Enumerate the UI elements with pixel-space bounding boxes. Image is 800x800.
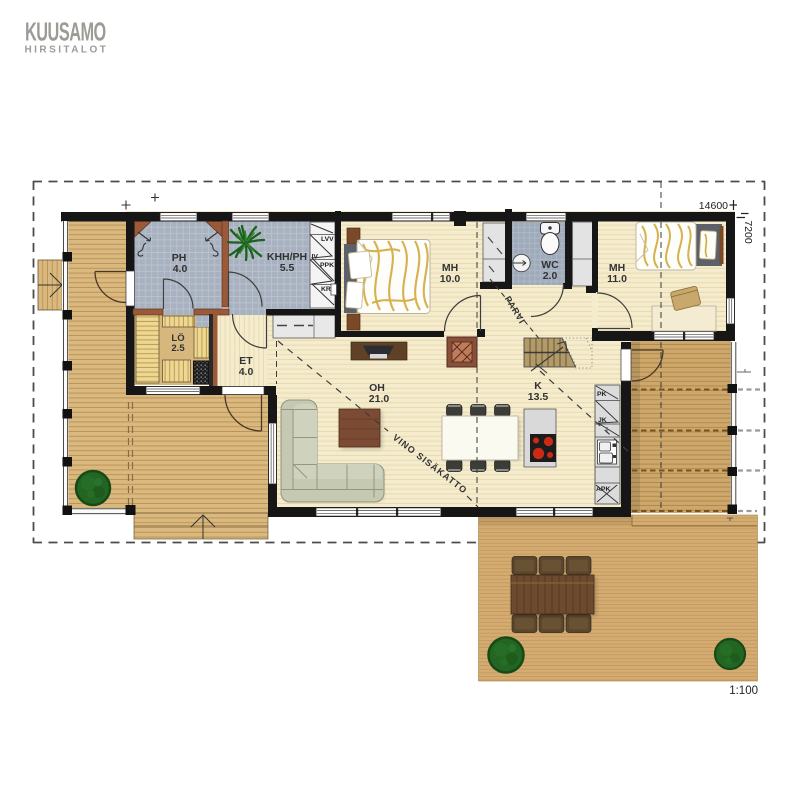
svg-text:JK: JK — [598, 417, 607, 424]
svg-text:KUUSAMO: KUUSAMO — [25, 17, 106, 47]
svg-text:IV: IV — [312, 254, 319, 261]
svg-text:APK: APK — [596, 486, 610, 493]
svg-text:13.5: 13.5 — [528, 391, 549, 403]
svg-text:5.5: 5.5 — [280, 262, 295, 274]
svg-text:11.0: 11.0 — [607, 273, 627, 285]
svg-text:7200: 7200 — [742, 220, 754, 244]
svg-text:4.0: 4.0 — [173, 263, 188, 275]
svg-text:2.5: 2.5 — [171, 343, 185, 354]
svg-text:PPK: PPK — [320, 262, 334, 269]
svg-text:10.0: 10.0 — [440, 273, 461, 285]
svg-text:KR: KR — [321, 286, 331, 293]
svg-text:HIRSITALOT: HIRSITALOT — [25, 44, 109, 55]
svg-text:14600: 14600 — [699, 200, 728, 212]
svg-text:PK: PK — [597, 391, 607, 398]
svg-text:21.0: 21.0 — [369, 393, 390, 405]
svg-text:1:100: 1:100 — [729, 685, 758, 697]
svg-text:2.0: 2.0 — [543, 270, 558, 282]
svg-text:LVV: LVV — [321, 236, 334, 243]
svg-text:4.0: 4.0 — [239, 366, 254, 378]
